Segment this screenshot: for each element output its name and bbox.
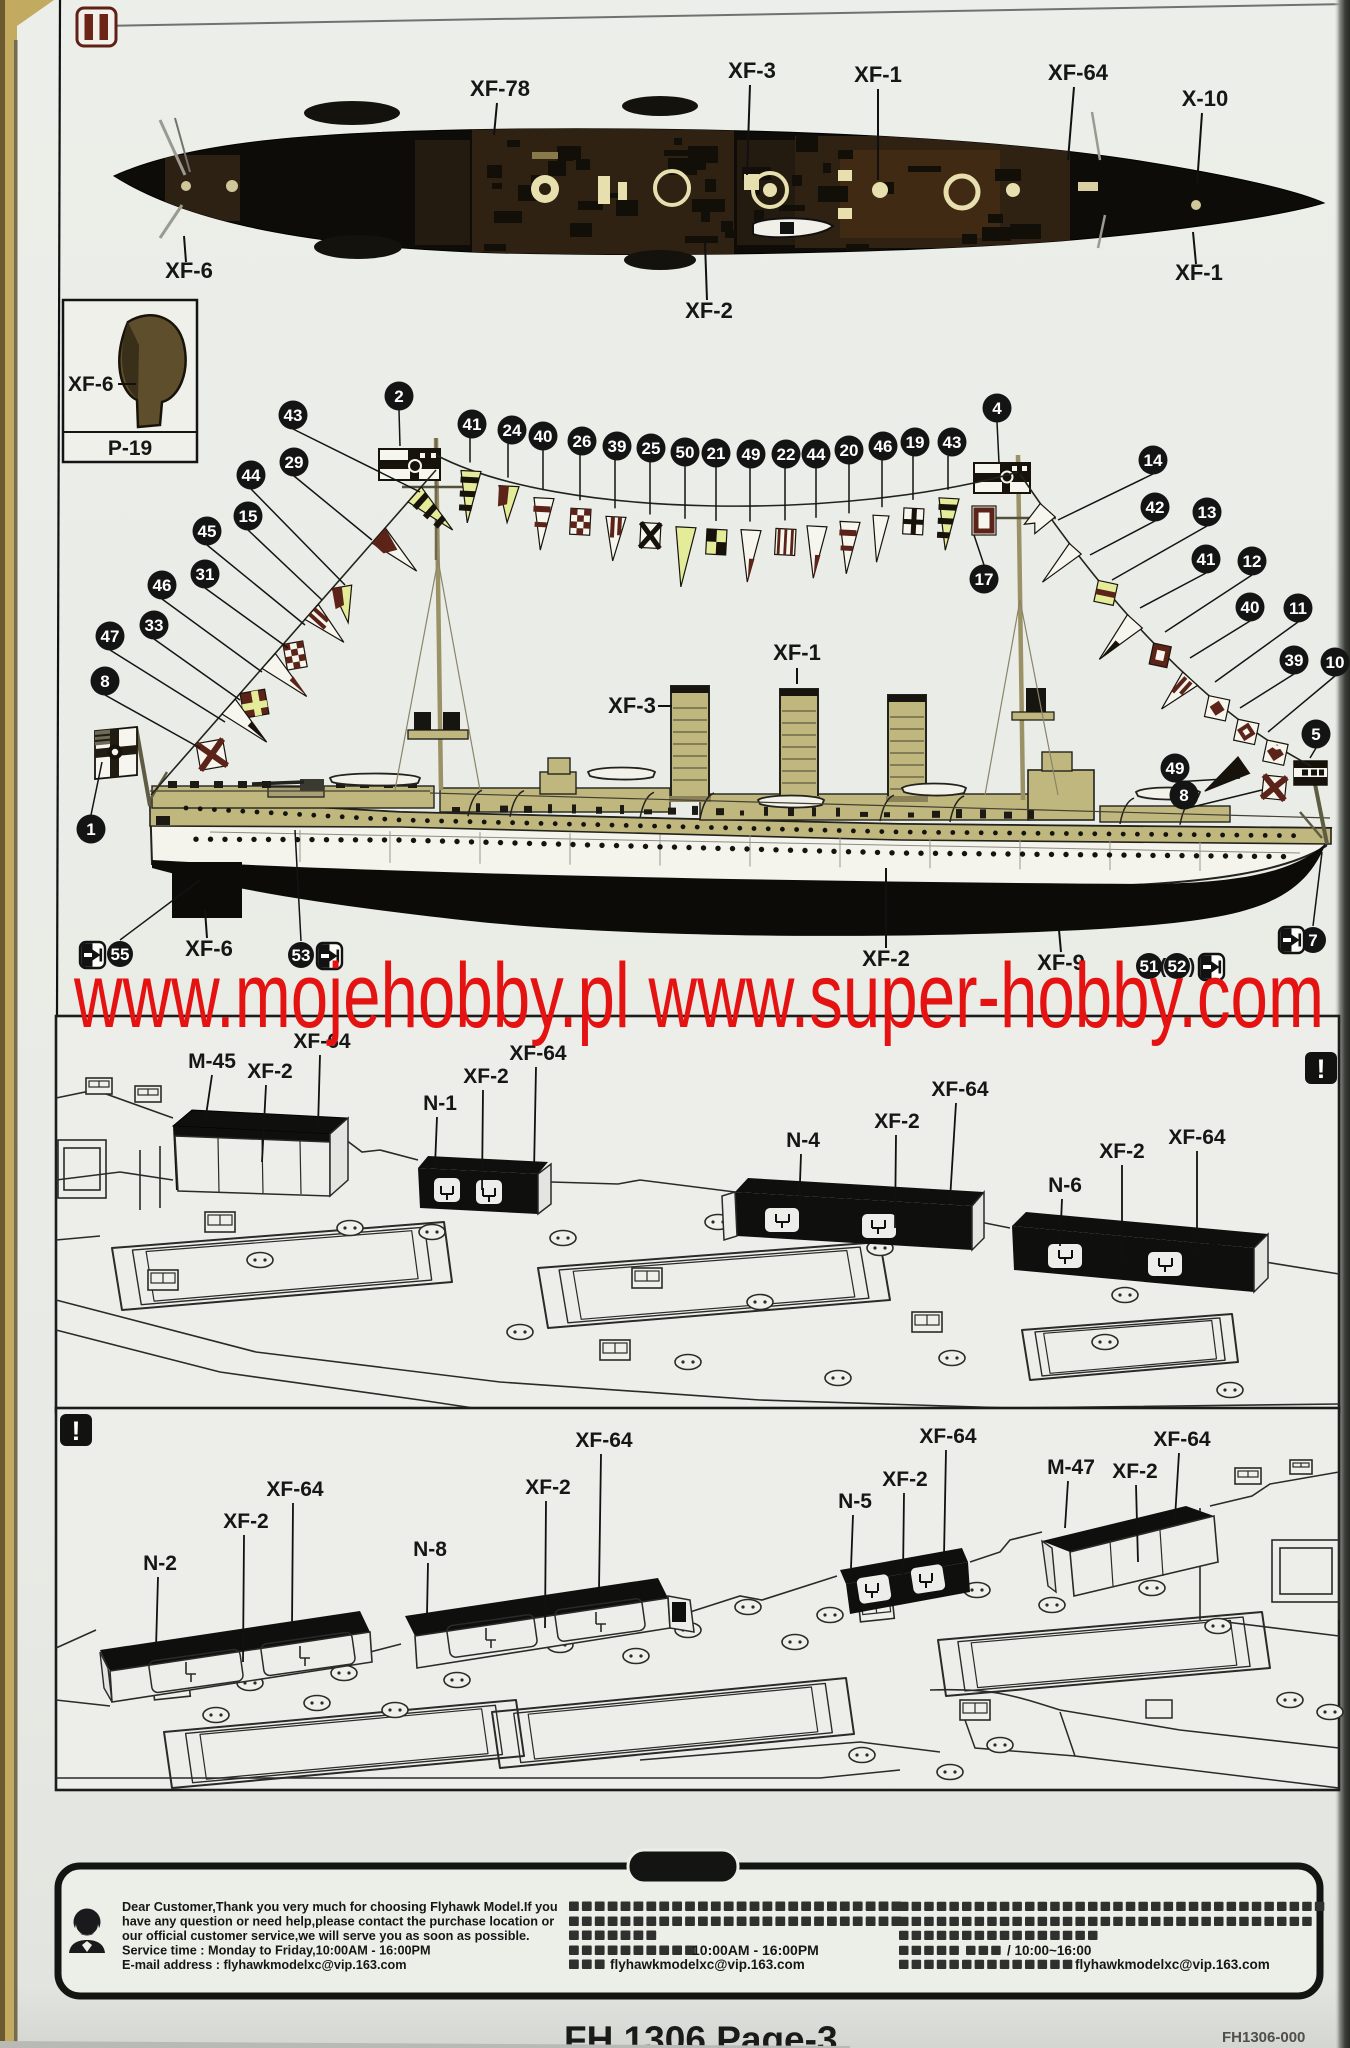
svg-text:10: 10: [1326, 653, 1345, 672]
svg-text:40: 40: [534, 427, 553, 446]
svg-text:X-10: X-10: [1182, 86, 1228, 111]
svg-text:Service time : Monday to Frida: Service time : Monday to Friday,10:00AM …: [122, 1944, 431, 1958]
svg-text:15: 15: [239, 507, 258, 526]
svg-text:M-47: M-47: [1047, 1456, 1095, 1479]
svg-text:XF-64: XF-64: [575, 1429, 633, 1452]
svg-text:N-8: N-8: [413, 1538, 447, 1561]
svg-text:5: 5: [1311, 725, 1320, 744]
svg-text:XF-2: XF-2: [525, 1476, 571, 1499]
svg-text:10:00AM - 16:00PM: 10:00AM - 16:00PM: [692, 1942, 819, 1958]
svg-text:4: 4: [992, 399, 1002, 418]
svg-text:19: 19: [906, 433, 925, 452]
svg-text:XF-3: XF-3: [728, 58, 776, 83]
svg-text:13: 13: [1198, 503, 1217, 522]
svg-text:FH1306-000: FH1306-000: [1222, 2029, 1305, 2046]
svg-text:29: 29: [285, 453, 304, 472]
svg-text:flyhawkmodelxc@vip.163.com: flyhawkmodelxc@vip.163.com: [1075, 1957, 1270, 1972]
svg-text:FH 1306 Page-3: FH 1306 Page-3: [564, 2019, 838, 2048]
svg-text:XF-64: XF-64: [266, 1478, 324, 1501]
svg-text:45: 45: [198, 522, 217, 541]
svg-text:14: 14: [1144, 451, 1163, 470]
svg-text:44: 44: [807, 445, 826, 464]
svg-text:have any question or need help: have any question or need help,please co…: [122, 1915, 554, 1929]
svg-text:41: 41: [1197, 550, 1216, 569]
svg-text:33: 33: [145, 616, 164, 635]
svg-text:N-1: N-1: [423, 1092, 457, 1115]
svg-text:17: 17: [975, 570, 994, 589]
svg-text:12: 12: [1243, 552, 1262, 571]
svg-text:XF-2: XF-2: [463, 1065, 509, 1088]
svg-text:39: 39: [608, 437, 627, 456]
svg-text:49: 49: [742, 445, 761, 464]
svg-text:XF-1: XF-1: [773, 640, 821, 665]
svg-text:XF-2: XF-2: [223, 1510, 269, 1533]
svg-text:1: 1: [86, 820, 95, 839]
svg-text:24: 24: [503, 421, 522, 440]
svg-text:11: 11: [1289, 599, 1307, 618]
svg-text:Dear Customer,Thank you very m: Dear Customer,Thank you very much for ch…: [122, 1900, 558, 1914]
svg-text:P-19: P-19: [108, 437, 152, 460]
svg-text:46: 46: [874, 437, 893, 456]
svg-text:20: 20: [840, 441, 859, 460]
svg-text:XF-2: XF-2: [874, 1110, 920, 1133]
svg-text:XF-78: XF-78: [470, 76, 530, 101]
svg-text:XF-2: XF-2: [247, 1060, 293, 1083]
svg-text:XF-1: XF-1: [854, 62, 902, 87]
svg-text:XF-6: XF-6: [68, 373, 114, 396]
svg-text:40: 40: [1241, 598, 1260, 617]
svg-text:!: !: [72, 1416, 81, 1446]
svg-text:our official customer service,: our official customer service,we will se…: [122, 1929, 530, 1943]
svg-text:www.mojehobby.pl www.super-hob: www.mojehobby.pl www.super-hobby.com: [73, 945, 1324, 1047]
svg-text:21: 21: [707, 444, 726, 463]
svg-text:2: 2: [394, 387, 403, 406]
svg-text:43: 43: [943, 433, 962, 452]
svg-text:XF-64: XF-64: [919, 1425, 977, 1448]
svg-text:XF-3: XF-3: [608, 693, 656, 718]
svg-text:25: 25: [642, 439, 661, 458]
svg-text:XF-64: XF-64: [1168, 1126, 1226, 1149]
svg-text:N-4: N-4: [786, 1129, 820, 1152]
svg-text:!: !: [1317, 1054, 1326, 1084]
svg-text:XF-2: XF-2: [1112, 1460, 1158, 1483]
svg-text:8: 8: [100, 672, 109, 691]
svg-text:XF-1: XF-1: [1175, 260, 1223, 285]
svg-text:42: 42: [1146, 498, 1165, 517]
svg-text:44: 44: [242, 466, 261, 485]
svg-text:XF-64: XF-64: [1048, 60, 1109, 85]
svg-text:/ 10:00~16:00: / 10:00~16:00: [1007, 1943, 1091, 1958]
svg-text:N-2: N-2: [143, 1552, 177, 1575]
svg-text:XF-64: XF-64: [931, 1078, 989, 1101]
svg-text:50: 50: [676, 443, 695, 462]
svg-text:47: 47: [101, 627, 120, 646]
svg-text:39: 39: [1285, 651, 1304, 670]
svg-text:XF-6: XF-6: [165, 258, 213, 283]
svg-text:8: 8: [1179, 786, 1188, 805]
svg-text:22: 22: [777, 445, 796, 464]
svg-text:XF-64: XF-64: [1153, 1428, 1211, 1451]
svg-text:flyhawkmodelxc@vip.163.com: flyhawkmodelxc@vip.163.com: [610, 1957, 805, 1972]
svg-text:E-mail address : flyhawkmodel: E-mail address : flyhawkmodelxc@vip.163.…: [122, 1958, 407, 1972]
svg-text:N-5: N-5: [838, 1490, 872, 1513]
svg-text:41: 41: [463, 415, 482, 434]
svg-text:XF-2: XF-2: [1099, 1140, 1145, 1163]
svg-text:N-6: N-6: [1048, 1174, 1082, 1197]
svg-text:M-45: M-45: [188, 1050, 236, 1073]
svg-text:31: 31: [196, 565, 215, 584]
svg-text:XF-2: XF-2: [685, 298, 733, 323]
svg-text:46: 46: [153, 576, 172, 595]
svg-text:49: 49: [1166, 759, 1185, 778]
svg-text:XF-2: XF-2: [882, 1468, 928, 1491]
svg-text:26: 26: [573, 432, 592, 451]
svg-text:43: 43: [284, 406, 303, 425]
